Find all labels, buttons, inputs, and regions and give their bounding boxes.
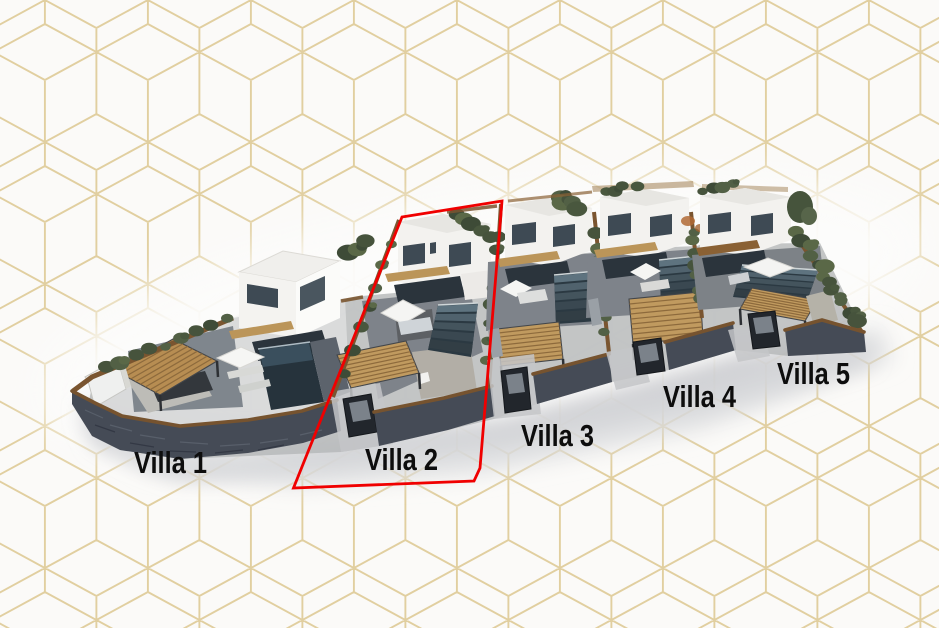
svg-text:Villa 3: Villa 3 xyxy=(521,418,594,453)
svg-text:Villa 4: Villa 4 xyxy=(663,379,737,414)
svg-text:Villa 5: Villa 5 xyxy=(777,356,850,391)
svg-text:Villa 2: Villa 2 xyxy=(365,442,438,477)
svg-text:Villa 1: Villa 1 xyxy=(134,445,207,480)
